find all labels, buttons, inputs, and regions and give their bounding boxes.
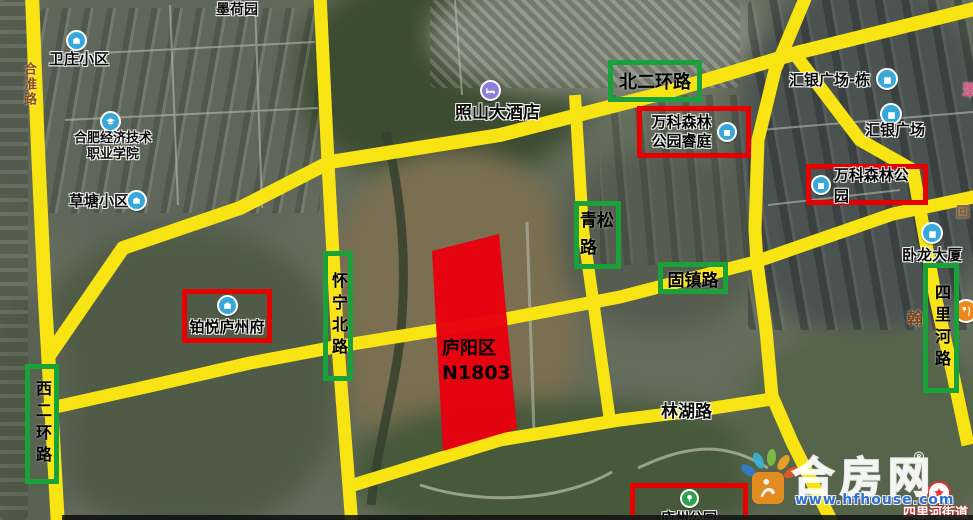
edge-fragment-mid: 回 (956, 202, 970, 222)
poi-wolong-tower[interactable]: 卧龙大厦 (902, 244, 962, 265)
building-icon[interactable] (921, 222, 943, 244)
parcel-code-label: N1803 (442, 362, 511, 384)
parcel-district-label: 庐阳区 (442, 334, 496, 360)
road-label-beierhuanlu: 北二环路 (608, 60, 702, 102)
edge-fragment-top: 翠 (962, 77, 973, 101)
poi-weizhuang[interactable]: 卫庄小区 (49, 48, 109, 69)
registered-mark: ® (912, 450, 926, 466)
road-label-xierhuanlu: 西二环路 (25, 364, 59, 484)
poi-vanke-ruiting-text: 万科森林公园睿庭 (652, 113, 714, 151)
satellite-map-canvas[interactable]: 庐阳区 N1803 北二环路 青松路 固镇路 怀宁北路 西二环路 四里河路 万科… (0, 0, 973, 520)
poi-vanke-park-text: 万科森林公园 (834, 164, 923, 206)
bottom-dark-strip (62, 515, 973, 520)
hfhouse-logo-icon (752, 472, 784, 504)
river (371, 132, 403, 505)
road-label-guzhenlu: 固镇路 (658, 262, 728, 294)
park-icon (680, 489, 699, 508)
poi-box-vanke-ruiting: 万科森林公园睿庭 (637, 106, 751, 158)
poi-han-fragment[interactable]: 翰 (907, 305, 923, 329)
road-label-huainingbeilu: 怀宁北路 (323, 251, 353, 381)
building-icon (811, 175, 831, 195)
hfhouse-url: www.hfhouse.com (795, 492, 954, 508)
road-label-qingsonglu: 青松路 (574, 201, 621, 269)
poi-vanke-ruiting-line1: 万科森林 (652, 113, 712, 131)
poi-huiyin-plaza-dong[interactable]: 汇银广场-栋 (789, 69, 870, 90)
hfhouse-watermark: 合房网 ® www.hfhouse.com (736, 448, 973, 516)
building-icon (717, 122, 737, 142)
logo-petal (751, 451, 766, 470)
poi-college-line2[interactable]: 职业学院 (87, 143, 139, 162)
poi-moheyuan[interactable]: 墨荷园 (216, 0, 258, 19)
building-icon[interactable] (876, 68, 898, 90)
poi-caotang[interactable]: 草塘小区 (69, 190, 129, 211)
poi-boyue-text: 铂悦庐州府 (189, 316, 264, 337)
poi-huiyin-plaza[interactable]: 汇银广场 (865, 119, 925, 140)
logo-petal (766, 449, 776, 467)
poi-zhaoshan-hotel[interactable]: 照山大酒店 (455, 98, 540, 123)
poi-box-vanke-park: 万科森林公园 (806, 164, 928, 205)
road-label-linhulu: 林湖路 (661, 397, 712, 422)
poi-box-boyue-luzhoufu: 铂悦庐州府 (182, 289, 272, 343)
road-label-silihelu: 四里河路 (923, 263, 959, 393)
home-icon[interactable] (126, 190, 147, 211)
road-name-hehuailu: 合淮路 (19, 62, 38, 107)
building-icon (217, 295, 238, 316)
poi-vanke-ruiting-line2: 公园睿庭 (652, 132, 712, 150)
